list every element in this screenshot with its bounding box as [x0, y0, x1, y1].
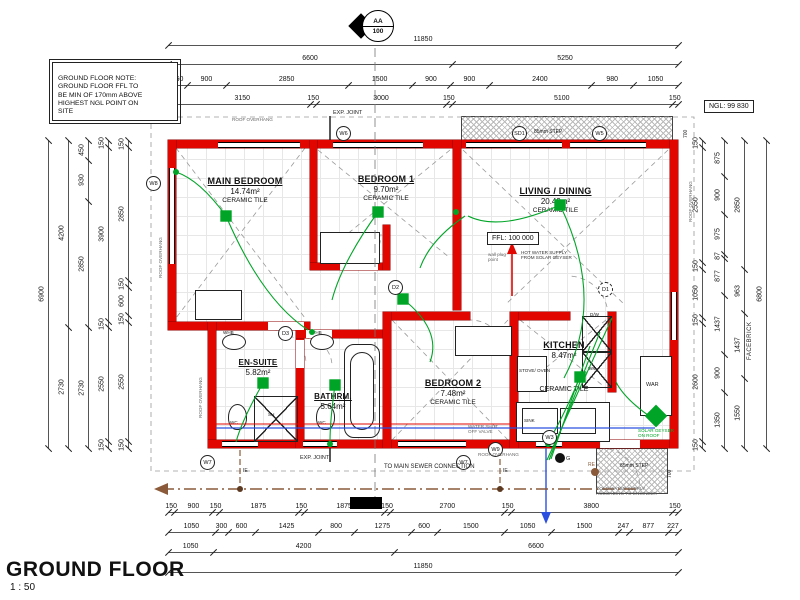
dim-tick — [721, 173, 728, 180]
door-gap-bed1 — [340, 263, 378, 270]
wall-ensuite-left — [208, 322, 216, 448]
step-note-bottom: 85mm STEP — [620, 464, 648, 470]
wall-bath-bed2 — [383, 312, 391, 448]
dim-tick — [105, 144, 112, 151]
dim-tick — [165, 42, 172, 49]
dim-tick — [105, 445, 112, 452]
dim-label: 2850 — [279, 76, 295, 83]
dishwasher-label: D/W — [590, 312, 599, 317]
hot-water-note: HOT WATER SUPPLY FROM SOLAR GEYSER — [521, 250, 572, 260]
dim-tick — [125, 445, 132, 452]
dim-label: 980 — [606, 76, 618, 83]
dim-tick — [699, 137, 706, 144]
dim-tick — [65, 445, 72, 452]
dim-tick — [85, 445, 92, 452]
dim-label: 1050 — [184, 523, 200, 530]
room-bedroom-1: BEDROOM 1 9.70m² CERAMIC TILE — [326, 174, 446, 202]
marker-d1: D1 — [598, 282, 613, 297]
dim-label: 150 — [99, 138, 106, 150]
dim-tick — [65, 137, 72, 144]
room-area: 14.74m² — [230, 187, 259, 196]
dim-label: 800 — [330, 523, 342, 530]
dim-label: 4200 — [59, 226, 66, 242]
wall-bed1-living — [453, 140, 461, 310]
dim-tick — [741, 137, 748, 144]
ffl-level-box: FFL: 100 000 — [487, 232, 539, 245]
dim-top-overall: 11850 — [168, 45, 678, 46]
dim-label: 11850 — [414, 563, 433, 570]
dim-tick — [675, 82, 682, 89]
room-name: BATHRM. — [314, 392, 352, 401]
dim-bottom-overall: 11850 — [168, 572, 678, 573]
drawing-scale: 1 : 50 — [10, 582, 35, 593]
roof-overhang-left2: ROOF OVERHANG — [198, 377, 203, 418]
shower-label: SH — [268, 412, 274, 417]
room-name: KITCHEN — [543, 340, 584, 350]
dim-tick — [85, 137, 92, 144]
window-bed2-bottom — [398, 441, 466, 447]
dim-label: 1425 — [279, 523, 295, 530]
dim-tick — [675, 549, 682, 556]
window-bed1-top — [333, 142, 423, 148]
dim-label: 3900 — [99, 226, 106, 242]
sliding-door-living — [466, 142, 562, 148]
dim-tick — [85, 198, 92, 205]
gully-label: G — [566, 456, 570, 462]
section-marker-bottom — [350, 497, 382, 509]
exp-joint-top: EXP. JOINT — [333, 111, 362, 117]
room-bedroom-2: BEDROOM 2 7.48m² CERAMIC TILE — [398, 378, 508, 406]
dim-label: 2400 — [532, 76, 548, 83]
room-name: BEDROOM 2 — [425, 378, 481, 388]
room-name: MAIN BEDROOM — [208, 176, 283, 186]
dim-label: 150 — [381, 503, 393, 510]
dim-label: 1050 — [693, 285, 700, 301]
dim-label: 2550 — [693, 197, 700, 213]
bathtub-inner — [350, 352, 374, 430]
robe-bed1 — [320, 232, 380, 264]
sewer-arrow — [154, 483, 168, 495]
whb-ensuite-label: WHB — [223, 330, 234, 335]
dim-label: 600 — [236, 523, 248, 530]
window-living-top — [570, 142, 646, 148]
dim-tick — [105, 324, 112, 331]
dim-tick — [721, 137, 728, 144]
dim-label: 5100 — [554, 95, 570, 102]
dim-label: 150 — [307, 95, 319, 102]
dim-label: 6600 — [528, 543, 544, 550]
room-finish: CERAMIC TILE — [222, 197, 267, 204]
sink-label: SINK — [524, 418, 535, 423]
room-area: 5.82m² — [246, 368, 271, 377]
roof-overhang-top: ROOF OVERHANG — [232, 117, 273, 122]
dim-right-openings: 8759009758787714379001350 — [724, 140, 725, 448]
room-name: EN-SUITE — [239, 358, 278, 367]
dim-left-openings: 45093028502730 — [88, 140, 89, 448]
dim-label: 1050 — [183, 543, 199, 550]
dim-tick — [675, 569, 682, 576]
dim-label: 150 — [669, 95, 681, 102]
dim-label: 877 — [715, 270, 722, 282]
dim-label: 150 — [693, 314, 700, 326]
room-area: 5.64m² — [321, 402, 346, 411]
dim-tick — [85, 324, 92, 331]
dim-label: 4200 — [296, 543, 312, 550]
room-finish: CERAMIC TILE — [363, 195, 408, 202]
room-en-suite: EN-SUITE 5.82m² — [218, 358, 298, 377]
ie-label-1: IE — [243, 468, 248, 474]
marker-w5: W5 — [592, 126, 607, 141]
room-kitchen: KITCHEN 8.47m² CERAMIC TILE — [520, 340, 608, 393]
dim-label: 247 — [617, 523, 629, 530]
dim-tick — [721, 445, 728, 452]
dim-label: 900 — [715, 189, 722, 201]
window-bath-bottom — [303, 441, 337, 447]
dim-tick — [184, 82, 191, 89]
dim-tick — [763, 445, 770, 452]
dim-top-openings: 4509002850150090090024009801050 — [168, 85, 678, 86]
dim-label: 900 — [201, 76, 213, 83]
dim-tick — [741, 375, 748, 382]
dim-label: 2850 — [735, 197, 742, 213]
room-area: 7.48m² — [441, 389, 466, 398]
wall-mainbed-bed1 — [310, 140, 317, 270]
section-divider — [363, 26, 393, 27]
dim-right-overall: 6800 — [766, 140, 767, 448]
dim-left-walls: 15039001502550150 — [108, 140, 109, 448]
dim-label: 150 — [693, 260, 700, 272]
wall-bed2-top — [390, 312, 470, 320]
dim-tick — [434, 529, 441, 536]
dim-label: 6900 — [39, 286, 46, 302]
ngl-level-box: NGL: 99 830 — [704, 100, 754, 113]
solar-geyser-note: SOLAR GEYSER ON ROOF — [638, 428, 674, 438]
dim-tick — [699, 445, 706, 452]
dim-tick — [721, 211, 728, 218]
marker-w8: W8 — [146, 176, 161, 191]
dim-tick — [391, 549, 398, 556]
dim-label: 1275 — [375, 523, 391, 530]
dim-tick — [210, 549, 217, 556]
ie-label-2: IE — [503, 468, 508, 474]
exp-joint-bottom: EXP. JOINT — [300, 456, 329, 462]
dim-left-halves: 42002730 — [68, 140, 69, 448]
dim-label: 150 — [295, 503, 307, 510]
dim-tick — [741, 310, 748, 317]
dim-tick — [486, 82, 493, 89]
dim-label: 1350 — [715, 412, 722, 428]
dim-tick — [548, 529, 555, 536]
ground-floor-note: GROUND FLOOR NOTE: GROUND FLOOR FFL TO B… — [52, 62, 178, 121]
dim-tick — [408, 529, 415, 536]
gully-g — [555, 453, 565, 463]
dim-tick — [699, 266, 706, 273]
dim-tick — [763, 137, 770, 144]
note-text: GROUND FLOOR NOTE: GROUND FLOOR FFL TO B… — [58, 75, 142, 115]
wall-kitchen-top — [510, 312, 570, 320]
dim-label: 963 — [735, 285, 742, 297]
dim-label: 150 — [693, 439, 700, 451]
dim-left-overall: 6900 — [48, 140, 49, 448]
dim-tick — [165, 529, 172, 536]
dim-label: 2550 — [119, 374, 126, 390]
whb-ensuite — [222, 334, 246, 350]
dim-label: 1437 — [735, 337, 742, 353]
dim-label: 875 — [715, 152, 722, 164]
dim-label: 900 — [715, 367, 722, 379]
dim-label: 87 — [715, 252, 722, 260]
re-label: RE — [588, 462, 595, 468]
dim-bottom-walls: 1509001501875150187515027001503800150 — [168, 512, 678, 513]
dim-tick — [741, 266, 748, 273]
war-label: WAR — [646, 382, 659, 388]
sewer-ie-1 — [237, 486, 243, 492]
dim-tick — [45, 137, 52, 144]
window-ensuite-bottom — [222, 441, 258, 447]
wc-ensuite — [228, 404, 247, 430]
step-dim-top: 700 — [684, 130, 690, 138]
sewer-note: TO MAIN SEWER CONNECTION — [384, 465, 475, 471]
shower-ensuite — [254, 396, 298, 442]
dim-tick — [105, 137, 112, 144]
facebrick-label: FACEBRICK — [748, 321, 754, 360]
dim-tick — [699, 144, 706, 151]
dim-tick — [501, 529, 508, 536]
dim-label: 2730 — [79, 380, 86, 396]
room-finish: CERAMIC TILE — [430, 399, 475, 406]
section-sheet: 100 — [373, 28, 384, 35]
dim-label: 6600 — [302, 55, 318, 62]
dim-right-walls: 150255015010501502600150 — [702, 140, 703, 448]
room-living-dining: LIVING / DINING 20.49m² CERAMIC TILE — [478, 186, 633, 214]
dim-tick — [351, 529, 358, 536]
dim-tick — [85, 157, 92, 164]
dim-tick — [125, 144, 132, 151]
dim-label: 150 — [119, 278, 126, 290]
room-finish: CERAMIC TILE — [533, 207, 578, 214]
dim-label: 2550 — [99, 377, 106, 393]
dim-label: 150 — [210, 503, 222, 510]
marker-sd1: SD1 — [512, 126, 527, 141]
wc-ensuite-label: WC — [230, 420, 238, 425]
dim-top-walls: 150315015030001505100150 — [168, 104, 678, 105]
dim-label: 11850 — [414, 36, 433, 43]
dim-label: 1500 — [577, 523, 593, 530]
dim-label: 900 — [464, 76, 476, 83]
dim-left-rooms: 15028501506001502550150 — [128, 140, 129, 448]
dim-tick — [125, 137, 132, 144]
dim-tick — [45, 445, 52, 452]
dim-label: 150 — [99, 439, 106, 451]
roof-overhang-right: ROOF OVERHANG — [688, 181, 693, 222]
dim-bottom-openings: 1050300600142580012756001500105015002478… — [168, 532, 678, 533]
dim-label: 3000 — [373, 95, 389, 102]
plug-point-note: wall plug point — [488, 252, 506, 262]
dim-tick — [699, 320, 706, 327]
section-code: AA — [373, 18, 382, 25]
dim-label: 900 — [188, 503, 200, 510]
marker-w6: W6 — [336, 126, 351, 141]
dim-tick — [588, 82, 595, 89]
dim-label: 150 — [99, 318, 106, 330]
dim-label: 150 — [165, 503, 177, 510]
room-name: LIVING / DINING — [519, 186, 591, 196]
dim-label: 150 — [119, 138, 126, 150]
dim-label: 450 — [79, 144, 86, 156]
dim-tick — [125, 277, 132, 284]
dim-label: 1050 — [520, 523, 536, 530]
patio-step-hatch — [461, 116, 673, 143]
window-right — [671, 292, 677, 340]
dim-label: 150 — [119, 439, 126, 451]
dim-tick — [447, 82, 454, 89]
dim-label: 150 — [502, 503, 514, 510]
dim-label: 2600 — [693, 375, 700, 391]
section-marker-aa: AA 100 — [350, 8, 400, 50]
window-mainbed-left — [169, 168, 175, 264]
dim-label: 1550 — [735, 405, 742, 421]
marker-d2: D2 — [388, 280, 403, 295]
dim-label: 2700 — [440, 503, 456, 510]
dim-tick — [675, 61, 682, 68]
cold-water-arrow — [541, 512, 551, 524]
dim-tick — [125, 319, 132, 326]
dim-label: 3800 — [583, 503, 599, 510]
dim-label: 150 — [669, 503, 681, 510]
dim-label: 975 — [715, 228, 722, 240]
dim-label: 600 — [418, 523, 430, 530]
dim-label: 1500 — [463, 523, 479, 530]
dim-label: 6800 — [757, 286, 764, 302]
cold-water-note: COLD WATER SUPPLY ACCORDING TO ENGINEER — [596, 486, 657, 496]
roof-overhang-left: ROOF OVERHANG — [158, 237, 163, 278]
sewer-ie-2 — [497, 486, 503, 492]
dim-tick — [721, 389, 728, 396]
whb-bath — [310, 334, 334, 350]
dim-tick — [125, 312, 132, 319]
marker-w3: W3 — [542, 430, 557, 445]
dim-tick — [409, 82, 416, 89]
wall-bed1-robe — [383, 225, 390, 270]
wc-bath-label: WC — [318, 420, 326, 425]
room-finish: CERAMIC TILE — [540, 386, 589, 393]
dim-label: 1875 — [251, 503, 267, 510]
dim-label: 2730 — [59, 380, 66, 396]
roof-overhang-bottom: ROOF OVERHANG — [478, 452, 519, 457]
window-mainbed-top — [218, 142, 300, 148]
dim-tick — [315, 529, 322, 536]
dim-label: 877 — [643, 523, 655, 530]
room-area: 9.70m² — [374, 185, 399, 194]
dim-label: 2850 — [119, 206, 126, 222]
dim-tick — [721, 351, 728, 358]
dim-label: 3150 — [234, 95, 250, 102]
section-bubble: AA 100 — [362, 10, 394, 42]
marker-w7-left: W7 — [200, 455, 215, 470]
room-area: 20.49m² — [541, 197, 570, 206]
whb-bath-label: WHB — [311, 330, 322, 335]
room-area: 8.47m² — [552, 351, 577, 360]
dim-tick — [65, 324, 72, 331]
dim-label: 227 — [667, 523, 679, 530]
room-main-bedroom: MAIN BEDROOM 14.74m² CERAMIC TILE — [185, 176, 305, 204]
dim-top-halves: 66005250 — [168, 64, 678, 65]
robe-bed2 — [455, 326, 512, 356]
dim-label: 1437 — [715, 317, 722, 333]
dim-tick — [630, 82, 637, 89]
dim-tick — [223, 82, 230, 89]
dim-tick — [721, 292, 728, 299]
dim-tick — [449, 61, 456, 68]
dim-label: 1500 — [372, 76, 388, 83]
drawing-title: GROUND FLOOR — [6, 558, 185, 582]
dim-label: 5250 — [557, 55, 573, 62]
dim-label: 150 — [693, 138, 700, 150]
dim-tick — [675, 42, 682, 49]
dim-label: 2850 — [79, 256, 86, 272]
dim-bottom-thirds: 105042006600 — [168, 552, 678, 553]
dim-label: 1050 — [648, 76, 664, 83]
dim-label: 150 — [119, 313, 126, 325]
dim-label: 900 — [425, 76, 437, 83]
dim-label: 150 — [443, 95, 455, 102]
robe-mainbed — [195, 290, 242, 320]
room-bathroom: BATHRM. 5.64m² — [300, 392, 366, 411]
dim-tick — [252, 529, 259, 536]
marker-d3: D3 — [278, 326, 293, 341]
floor-plan-canvas: WHB WC SH WHB WC STOVE/ OVEN SINK D/W WM… — [0, 0, 800, 600]
dim-label: 930 — [79, 175, 86, 187]
sink-bowl-2 — [560, 408, 596, 434]
dim-right-rooms: 285096314371550 — [744, 140, 745, 448]
shutoff-valve-note: WATER SHUT OFF VALVE — [468, 424, 498, 434]
dim-tick — [165, 549, 172, 556]
step-note-top: 85mm STEP — [534, 130, 562, 136]
dim-label: 600 — [119, 295, 126, 307]
dim-label: 300 — [216, 523, 228, 530]
room-name: BEDROOM 1 — [358, 174, 414, 184]
dim-tick — [345, 82, 352, 89]
dim-tick — [125, 438, 132, 445]
dim-tick — [741, 445, 748, 452]
step-dim-bottom: 700 — [668, 470, 674, 478]
dim-tick — [125, 284, 132, 291]
